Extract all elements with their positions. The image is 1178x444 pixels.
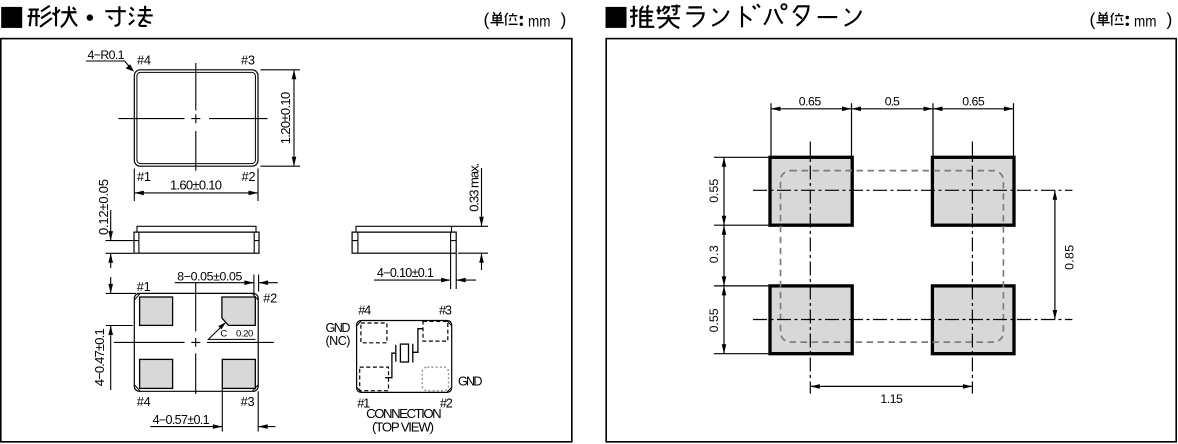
svg-text:0.12±0.05: 0.12±0.05 [96,179,111,235]
svg-text:0.65: 0.65 [799,94,822,108]
svg-text:#2: #2 [242,169,256,184]
svg-text:#4: #4 [137,394,151,409]
svg-text:8−0.05±0.05: 8−0.05±0.05 [177,269,242,283]
svg-text:GND: GND [458,374,483,388]
svg-text:#2: #2 [263,291,277,306]
svg-text:#3: #3 [439,303,452,318]
svg-text:#2: #2 [440,396,453,411]
svg-text:4−0.47±0.1: 4−0.47±0.1 [92,328,107,386]
svg-text:#4: #4 [358,303,371,318]
svg-text:0.33 max.: 0.33 max. [467,163,482,212]
svg-text:#3: #3 [241,52,255,67]
svg-text:1.60±0.10: 1.60±0.10 [170,177,222,192]
svg-text:GND: GND [326,321,351,335]
svg-text:0.65: 0.65 [962,94,985,108]
svg-text:#1: #1 [137,279,151,294]
svg-text:0.20: 0.20 [236,328,253,339]
svg-text:(NC): (NC) [326,334,351,348]
svg-text:0.3: 0.3 [707,245,721,263]
svg-text:0.55: 0.55 [707,308,721,332]
svg-text:1.20±0.10: 1.20±0.10 [278,92,293,145]
svg-text:#3: #3 [241,394,255,409]
svg-text:4−0.10±0.1: 4−0.10±0.1 [377,266,434,280]
svg-text:(TOP VIEW): (TOP VIEW) [372,420,434,435]
svg-text:4−R0.1: 4−R0.1 [88,48,125,62]
svg-text:4−0.57±0.1: 4−0.57±0.1 [153,413,210,427]
svg-text:#4: #4 [137,52,151,67]
svg-text:0.5: 0.5 [885,94,900,108]
svg-text:#1: #1 [137,169,151,184]
svg-text:1.15: 1.15 [880,392,903,406]
svg-text:C: C [220,328,227,339]
svg-text:0.55: 0.55 [707,179,721,203]
svg-text:0.85: 0.85 [1063,245,1077,270]
